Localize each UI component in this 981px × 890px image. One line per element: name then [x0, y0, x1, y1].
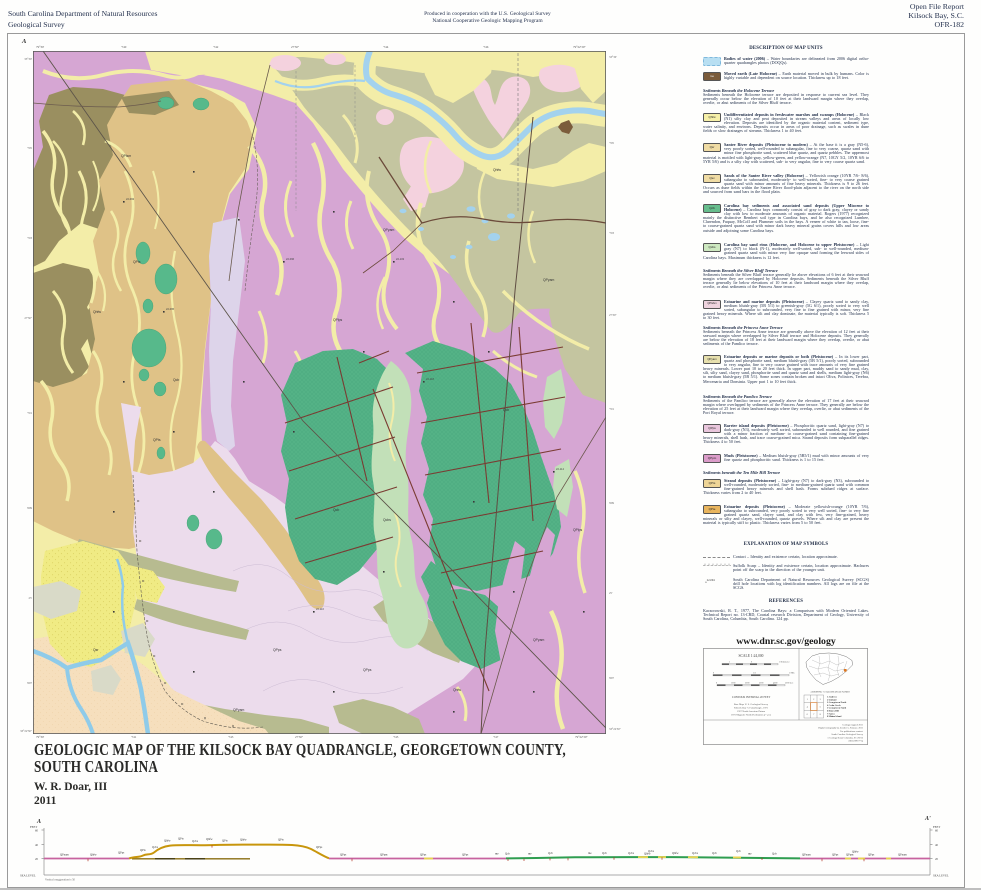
svg-text:QPts: QPts [140, 848, 146, 852]
svg-text:20: 20 [35, 857, 39, 861]
svg-text:5 Geology Road, Columbia, SC 2: 5 Geology Road, Columbia, SC 29212 [827, 736, 863, 739]
svg-text:Qhfw: Qhfw [644, 851, 651, 855]
svg-text:QPps: QPps [118, 851, 125, 855]
svg-text:1: 1 [807, 698, 809, 701]
svg-text:Qcbs: Qcbs [152, 845, 159, 849]
svg-text:QPps: QPps [273, 648, 282, 652]
svg-text:me: me [748, 851, 752, 855]
svg-text:Qhfw: Qhfw [453, 688, 461, 692]
svg-text:Qhfw: Qhfw [164, 839, 171, 843]
svg-text:20: 20 [935, 857, 939, 861]
svg-text:22-103: 22-103 [396, 257, 405, 261]
svg-text:0: 0 [716, 683, 718, 685]
svg-text:QPyam: QPyam [898, 853, 907, 857]
svg-text:2 Oatland: 2 Oatland [827, 699, 837, 701]
svg-text:1 Kilometer: 1 Kilometer [779, 662, 790, 664]
svg-text:Qcb: Qcb [772, 851, 777, 855]
svg-text:Qcbs: Qcbs [383, 518, 391, 522]
svg-text:7 Santee: 7 Santee [827, 713, 835, 715]
svg-text:QPps: QPps [316, 845, 323, 849]
svg-text:22-096: 22-096 [286, 257, 295, 261]
svg-text:Qcb: Qcb [333, 508, 339, 512]
svg-text:me: me [588, 851, 592, 855]
svg-text:QPyam: QPyam [543, 278, 554, 282]
svg-text:QPts: QPts [178, 837, 184, 841]
svg-text:1000: 1000 [731, 683, 736, 685]
svg-text:QPyam: QPyam [533, 638, 544, 642]
svg-text:0: 0 [713, 673, 715, 675]
svg-text:40: 40 [35, 843, 39, 847]
svg-text:QPps: QPps [420, 853, 427, 857]
svg-text:me: me [528, 852, 532, 856]
svg-text:Qsr: Qsr [93, 648, 99, 652]
svg-text:8: 8 [820, 713, 822, 716]
svg-text:5: 5 [820, 706, 822, 709]
svg-text:40: 40 [935, 843, 939, 847]
svg-text:22-093: 22-093 [126, 197, 135, 201]
svg-text:0: 0 [751, 662, 753, 664]
svg-text:Qcb: Qcb [173, 378, 179, 382]
svg-text:QPps: QPps [462, 853, 469, 857]
svg-text:7: 7 [813, 713, 815, 716]
svg-text:Qcb: Qcb [736, 849, 741, 853]
svg-text:Digital cartography by Jennife: Digital cartography by Jennifer L. Kraus… [818, 727, 864, 730]
svg-text:5 Georgetown South: 5 Georgetown South [827, 707, 847, 710]
svg-text:4: 4 [807, 706, 809, 709]
svg-text:22-114: 22-114 [556, 467, 564, 471]
svg-text:QPyam: QPyam [802, 853, 811, 857]
svg-text:1/2: 1/2 [753, 673, 756, 675]
svg-text:QPts: QPts [278, 838, 284, 842]
svg-text:1 Andrews: 1 Andrews [827, 696, 837, 699]
svg-text:QPyam: QPyam [233, 708, 244, 712]
svg-text:Qcbs: Qcbs [192, 839, 199, 843]
svg-text:3: 3 [820, 698, 822, 701]
svg-text:Qhfw: Qhfw [206, 837, 213, 841]
svg-text:SEA LEVEL: SEA LEVEL [933, 874, 949, 878]
svg-text:CONTOUR INTERVAL 20 FEET: CONTOUR INTERVAL 20 FEET [732, 696, 771, 699]
svg-text:QPts: QPts [133, 260, 141, 264]
svg-text:3 Georgetown North: 3 Georgetown North [827, 701, 847, 704]
svg-text:Qcb: Qcb [712, 851, 717, 855]
svg-text:QPlps: QPlps [573, 528, 583, 532]
svg-text:22-116: 22-116 [316, 607, 324, 611]
svg-text:Qcbs: Qcbs [692, 851, 699, 855]
svg-text:1 Mile: 1 Mile [789, 673, 795, 675]
svg-text:4000: 4000 [773, 683, 778, 685]
svg-text:Qhfw: Qhfw [240, 838, 247, 842]
svg-text:Qcbs: Qcbs [628, 851, 635, 855]
svg-text:me: me [495, 852, 499, 856]
svg-text:60: 60 [935, 829, 939, 833]
svg-text:QPyam: QPyam [383, 228, 394, 232]
svg-text:4 Cedar Creek: 4 Cedar Creek [827, 705, 841, 707]
svg-text:QPlps: QPlps [333, 318, 343, 322]
svg-text:Qhfw: Qhfw [93, 310, 101, 314]
svg-text:ADJOINING 7.5' QUADRANGLE NAME: ADJOINING 7.5' QUADRANGLE NAMES [810, 691, 850, 694]
svg-text:QPts: QPts [153, 438, 161, 442]
svg-text:QPps: QPps [868, 853, 875, 857]
svg-text:A': A' [924, 816, 931, 822]
svg-text:QPps: QPps [340, 853, 347, 857]
svg-text:6 Honey Hill: 6 Honey Hill [827, 711, 839, 713]
svg-text:SEA LEVEL: SEA LEVEL [20, 874, 36, 878]
svg-text:QPyam: QPyam [60, 853, 69, 857]
svg-text:QPps: QPps [832, 853, 839, 857]
svg-text:South Carolina Geological Surv: South Carolina Geological Survey [831, 733, 863, 736]
svg-text:60: 60 [35, 829, 39, 833]
svg-text:Qcb: Qcb [503, 408, 509, 412]
svg-text:1973 Magnetic North Declinatio: 1973 Magnetic North Declination 4° west [731, 714, 771, 717]
svg-text:QPpm: QPpm [846, 853, 854, 857]
svg-text:QPps: QPps [363, 668, 372, 672]
svg-text:Qhfw: Qhfw [672, 851, 679, 855]
svg-text:QPlsm: QPlsm [121, 154, 131, 158]
svg-text:QPpm: QPpm [380, 853, 388, 857]
svg-text:1: 1 [729, 662, 730, 664]
svg-text:Qhfw: Qhfw [90, 853, 97, 857]
svg-text:For publications contact:: For publications contact: [840, 731, 863, 733]
svg-text:3000: 3000 [759, 683, 764, 685]
svg-text:6: 6 [807, 713, 809, 716]
svg-text:(803) 896-7714: (803) 896-7714 [849, 740, 864, 743]
svg-text:8 Minim Island: 8 Minim Island [827, 716, 842, 718]
svg-text:5000 feet: 5000 feet [785, 682, 794, 685]
svg-text:QPts: QPts [222, 839, 228, 843]
svg-text:Qcb: Qcb [602, 851, 607, 855]
svg-text:22-095: 22-095 [166, 307, 175, 311]
svg-text:Vertical exaggeration is 50: Vertical exaggeration is 50 [45, 879, 76, 882]
svg-text:Geology mapped 2011: Geology mapped 2011 [842, 724, 864, 727]
svg-text:SCALE 1:24,000: SCALE 1:24,000 [739, 654, 764, 659]
svg-text:2000: 2000 [745, 683, 750, 685]
svg-text:Qhfw: Qhfw [493, 168, 501, 172]
svg-text:Qcb: Qcb [548, 851, 553, 855]
svg-text:22-118: 22-118 [426, 377, 434, 381]
svg-text:Qcb: Qcb [505, 852, 510, 856]
svg-text:2: 2 [813, 698, 815, 701]
